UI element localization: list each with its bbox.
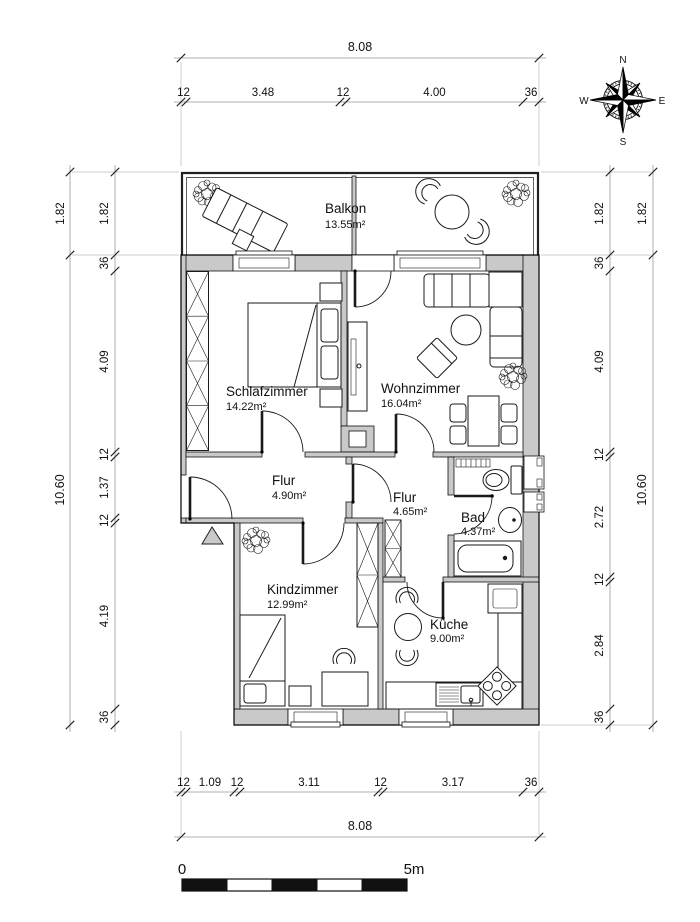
dim-bottom-seg4: 12 xyxy=(374,777,387,789)
room-flur-1: Flur 4.90m² xyxy=(272,473,307,502)
room-balkon: Balkon 13.55m² xyxy=(182,173,538,255)
chair xyxy=(450,404,466,422)
door-wohnzimmer xyxy=(394,414,434,454)
dim-top-seg1: 3.48 xyxy=(252,87,274,99)
fridge xyxy=(488,584,522,613)
dim-left-outer0: 1.82 xyxy=(55,202,67,224)
compass-north-label: N xyxy=(619,55,626,66)
desk xyxy=(322,672,368,706)
dim-right-outer0: 1.82 xyxy=(637,202,649,224)
bathtub xyxy=(454,541,521,576)
dim-top-overall: 8.08 xyxy=(348,40,372,54)
kitchen-table-set xyxy=(395,587,422,665)
scale-end-label: 5m xyxy=(404,861,425,878)
compass-rose-icon: N S W E xyxy=(579,55,665,148)
dim-right-inner4: 2.72 xyxy=(594,506,606,528)
chair xyxy=(501,426,517,444)
room-wohnzimmer: Wohnzimmer 16.04m² xyxy=(348,272,527,446)
entrance-arrow xyxy=(202,527,223,544)
window xyxy=(288,709,343,727)
floor-plan-page: 8.08 12 3.48 12 4.00 36 12 1.09 12 3.11 … xyxy=(0,0,700,922)
window xyxy=(394,251,486,271)
room-label: Kindzimmer xyxy=(267,582,339,597)
room-area: 4.65m² xyxy=(393,506,428,518)
shaft-box xyxy=(349,431,366,447)
dim-right-inner1: 36 xyxy=(594,257,606,270)
dim-left-inner1: 36 xyxy=(99,257,111,270)
room-area: 4.37m² xyxy=(461,526,496,538)
coffee-table xyxy=(451,315,481,345)
desk-set xyxy=(322,648,368,706)
bathroom-shaft-window xyxy=(524,456,544,489)
armchair xyxy=(416,337,457,378)
nightstand xyxy=(320,283,342,301)
bathroom-shaft-window xyxy=(524,492,544,512)
dim-bottom-seg2: 12 xyxy=(231,777,244,789)
dimension-right: 1.82 36 4.09 12 2.72 12 2.84 36 1.82 10.… xyxy=(594,165,657,732)
dim-left-inner3: 12 xyxy=(99,448,111,461)
dim-right-inner2: 4.09 xyxy=(594,350,606,372)
wardrobe xyxy=(187,272,209,451)
nightstand xyxy=(289,686,311,706)
kitchen-sink xyxy=(436,683,483,706)
dim-bottom-seg3: 3.11 xyxy=(298,777,320,789)
dining-table xyxy=(468,396,499,446)
compass-south-label: S xyxy=(620,137,627,148)
door-schlafzimmer xyxy=(260,411,303,454)
dim-top-seg0: 12 xyxy=(177,87,190,99)
tv-board xyxy=(348,322,367,411)
room-area: 4.90m² xyxy=(272,490,307,502)
dim-left-inner5: 12 xyxy=(99,514,111,527)
dim-bottom-seg0: 12 xyxy=(177,777,190,789)
room-bad: Bad 4.37m² xyxy=(454,459,522,576)
room-kindzimmer: Kindzimmer 12.99m² xyxy=(240,523,378,706)
dim-left-outer1: 10.60 xyxy=(53,474,67,505)
scale-start-label: 0 xyxy=(178,861,186,878)
dim-left-inner6: 4.19 xyxy=(99,605,111,627)
dim-bottom-seg5: 3.17 xyxy=(442,777,464,789)
dim-right-inner7: 36 xyxy=(594,711,606,724)
dim-left-inner2: 4.09 xyxy=(99,350,111,372)
dim-top-seg4: 36 xyxy=(525,87,538,99)
compass-west-label: W xyxy=(579,96,589,107)
dim-right-inner3: 12 xyxy=(594,448,606,461)
dimension-top: 8.08 12 3.48 12 4.00 36 xyxy=(174,40,546,106)
dimension-bottom: 12 1.09 12 3.11 12 3.17 36 8.08 xyxy=(174,777,546,841)
dining-table-set xyxy=(450,396,517,446)
dim-left-inner0: 1.82 xyxy=(99,202,111,224)
window xyxy=(233,251,295,271)
room-label: Bad xyxy=(461,510,485,525)
scale-bar: 0 5m xyxy=(178,861,425,891)
door-balcony xyxy=(353,269,391,307)
dim-right-inner6: 2.84 xyxy=(594,634,606,657)
door-entrance xyxy=(188,477,232,521)
plant-icon xyxy=(242,527,270,554)
dim-left-inner4: 1.37 xyxy=(99,476,111,498)
compass-east-label: E xyxy=(659,96,666,107)
room-schlafzimmer: Schlafzimmer 14.22m² xyxy=(187,272,343,451)
wardrobe xyxy=(357,523,378,627)
room-flur-2: Flur 4.65m² xyxy=(385,490,428,577)
dim-left-inner7: 36 xyxy=(99,711,111,724)
window xyxy=(399,709,453,727)
door-kindzimmer xyxy=(301,521,344,564)
dim-right-inner0: 1.82 xyxy=(594,202,606,224)
dim-top-seg2: 12 xyxy=(337,87,350,99)
radiator xyxy=(456,459,490,467)
room-area: 12.99m² xyxy=(267,599,308,611)
chair xyxy=(501,404,517,422)
floor-plan-drawing: 8.08 12 3.48 12 4.00 36 12 1.09 12 3.11 … xyxy=(0,0,700,922)
dim-right-outer1: 10.60 xyxy=(635,474,649,505)
wardrobe xyxy=(385,520,401,577)
dim-top-seg3: 4.00 xyxy=(423,87,445,99)
nightstand xyxy=(320,389,342,407)
toilet xyxy=(483,466,522,494)
room-label: Wohnzimmer xyxy=(381,381,461,396)
room-label: Schlafzimmer xyxy=(226,384,308,399)
balcony-door-opening xyxy=(352,255,394,271)
dim-bottom-seg6: 36 xyxy=(525,777,538,789)
room-label: Flur xyxy=(272,473,296,488)
room-area: 9.00m² xyxy=(430,633,465,645)
door-flur xyxy=(351,464,391,504)
dim-bottom-seg1: 1.09 xyxy=(199,777,221,789)
room-area: 13.55m² xyxy=(325,219,366,231)
kitchen-table xyxy=(395,614,422,641)
sink xyxy=(499,508,522,533)
dim-right-inner5: 12 xyxy=(594,573,606,586)
room-area: 16.04m² xyxy=(381,398,422,410)
room-kueche: Küche 9.00m² xyxy=(386,584,522,709)
single-bed xyxy=(240,615,311,706)
room-area: 14.22m² xyxy=(226,401,267,413)
room-label: Küche xyxy=(430,617,468,632)
room-label: Flur xyxy=(393,490,417,505)
chair xyxy=(450,426,466,444)
dim-bottom-overall: 8.08 xyxy=(348,819,372,833)
dimension-left: 1.82 10.60 1.82 36 4.09 12 1.37 12 4.19 … xyxy=(53,165,119,732)
room-label: Balkon xyxy=(325,201,366,216)
